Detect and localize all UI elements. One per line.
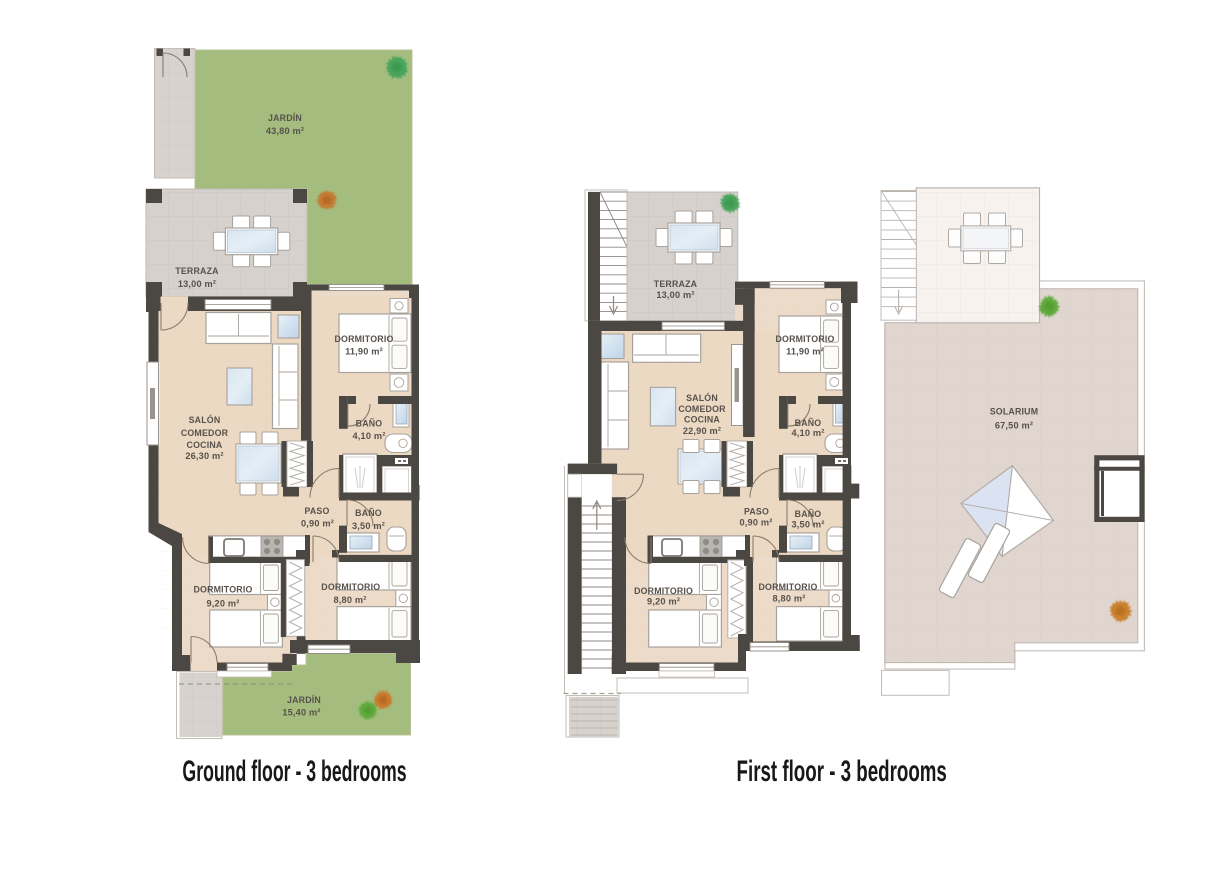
svg-text:TERRAZA: TERRAZA (175, 266, 219, 276)
svg-text:13,00 m²: 13,00 m² (178, 279, 216, 289)
svg-text:4,10 m²: 4,10 m² (791, 428, 824, 438)
svg-text:COMEDOR: COMEDOR (181, 428, 229, 438)
svg-text:DORMITORIO: DORMITORIO (775, 334, 834, 344)
svg-text:SALÓN: SALÓN (686, 392, 718, 403)
svg-text:8,80 m²: 8,80 m² (772, 594, 805, 604)
svg-text:SOLARIUM: SOLARIUM (990, 407, 1039, 417)
svg-text:43,80 m²: 43,80 m² (266, 126, 304, 136)
svg-text:JARDÍN: JARDÍN (287, 695, 321, 705)
svg-text:JARDÍN: JARDÍN (268, 113, 302, 123)
svg-text:DORMITORIO: DORMITORIO (634, 586, 693, 596)
svg-text:PASO: PASO (304, 506, 329, 516)
svg-text:11,90 m²: 11,90 m² (786, 347, 824, 357)
svg-text:15,40 m²: 15,40 m² (282, 708, 320, 718)
svg-text:SALÓN: SALÓN (189, 414, 221, 425)
svg-text:BAÑO: BAÑO (795, 418, 822, 428)
svg-text:BAÑO: BAÑO (355, 508, 382, 518)
svg-text:3,50 m²: 3,50 m² (352, 521, 385, 531)
svg-text:3,50 m²: 3,50 m² (791, 520, 824, 530)
svg-text:PASO: PASO (744, 507, 769, 517)
svg-text:COCINA: COCINA (187, 440, 223, 450)
svg-text:9,20 m²: 9,20 m² (647, 597, 680, 607)
svg-text:4,10 m²: 4,10 m² (352, 431, 385, 441)
svg-text:22,90 m²: 22,90 m² (683, 426, 721, 436)
svg-text:First floor - 3 bedrooms: First floor - 3 bedrooms (737, 755, 947, 789)
svg-text:67,50 m²: 67,50 m² (995, 421, 1033, 431)
svg-text:11,90 m²: 11,90 m² (345, 347, 383, 357)
svg-text:COMEDOR: COMEDOR (678, 404, 726, 414)
svg-text:0,90 m²: 0,90 m² (301, 519, 334, 529)
svg-text:DORMITORIO: DORMITORIO (334, 334, 393, 344)
svg-text:8,80 m²: 8,80 m² (333, 595, 366, 605)
svg-text:9,20 m²: 9,20 m² (206, 599, 239, 609)
svg-text:DORMITORIO: DORMITORIO (321, 582, 380, 592)
svg-text:DORMITORIO: DORMITORIO (758, 582, 817, 592)
svg-text:26,30 m²: 26,30 m² (185, 451, 223, 461)
svg-text:BAÑO: BAÑO (795, 509, 822, 519)
svg-text:13,00 m²: 13,00 m² (656, 290, 694, 300)
svg-text:DORMITORIO: DORMITORIO (193, 585, 252, 595)
svg-text:BAÑO: BAÑO (356, 419, 383, 429)
svg-text:TERRAZA: TERRAZA (654, 279, 698, 289)
svg-text:COCINA: COCINA (684, 415, 720, 425)
svg-text:0,90 m²: 0,90 m² (739, 518, 772, 528)
svg-text:Ground floor - 3 bedrooms: Ground floor - 3 bedrooms (182, 755, 406, 788)
